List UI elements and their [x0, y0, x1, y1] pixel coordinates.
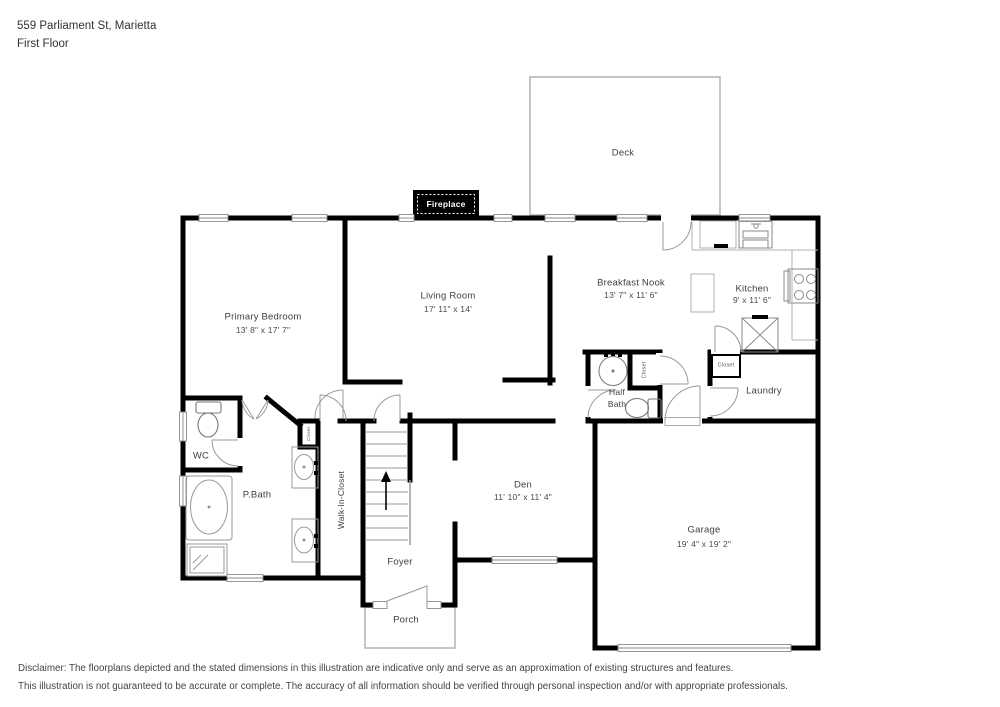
room-dims-breakfast-nook: 13' 7" x 11' 6" [604, 291, 658, 300]
room-label-fireplace: Fireplace [426, 200, 465, 209]
floorplan-page: 559 Parliament St, Marietta First Floor [0, 0, 1000, 707]
vanity-sink-icon-1 [292, 447, 318, 488]
room-label-foyer: Foyer [387, 557, 412, 567]
kitchen-sink-icon [739, 221, 772, 248]
porch-outline [365, 607, 455, 648]
room-label-kitchen: Kitchen [735, 284, 768, 294]
counter-detail [714, 244, 728, 248]
pantry-icon [742, 315, 778, 352]
shower-icon [187, 544, 227, 576]
stove-icon [784, 269, 818, 303]
sink-icon-half-bath [599, 352, 627, 386]
room-label-garage: Garage [688, 525, 721, 535]
room-label-den: Den [514, 480, 532, 490]
staircase-icon [365, 432, 408, 540]
walls [183, 218, 818, 648]
door-openings [236, 214, 740, 609]
room-label-living-room: Living Room [420, 291, 475, 301]
room-dims-den: 11' 10" x 11' 4" [494, 493, 552, 502]
windows [180, 215, 792, 652]
closet-label-hall: Closet [307, 427, 312, 441]
room-label-p-bath: P.Bath [243, 490, 272, 500]
garage-entry-door [665, 418, 700, 426]
disclaimer-line-2: This illustration is not guaranteed to b… [18, 681, 788, 692]
room-dims-garage: 19' 4" x 19' 2" [677, 540, 731, 549]
room-dims-living-room: 17' 11" x 14' [424, 305, 472, 314]
room-label-half-bath-1: Half [609, 388, 625, 397]
toilet-icon-wc [196, 402, 221, 437]
room-dims-primary-bedroom: 13' 8" x 17' 7" [236, 326, 290, 335]
vanity-sink-icon-2 [292, 519, 318, 562]
room-label-primary-bedroom: Primary Bedroom [225, 312, 302, 322]
room-label-walk-in-closet: Walk-In-Closet [337, 471, 346, 529]
room-label-porch: Porch [393, 615, 419, 625]
disclaimer-line-1: Disclaimer: The floorplans depicted and … [18, 663, 733, 674]
closet-label-laundry: Closet [718, 363, 735, 369]
kitchen-island [691, 274, 714, 312]
room-label-breakfast-nook: Breakfast Nook [597, 278, 665, 288]
bathtub-icon [186, 476, 232, 540]
deck-outline [530, 77, 720, 215]
toilet-icon-half-bath [626, 399, 662, 419]
room-label-deck: Deck [612, 148, 634, 158]
floorplan-drawing [0, 0, 1000, 707]
room-label-half-bath-2: Bath [608, 400, 626, 409]
room-label-wc: WC [193, 451, 209, 461]
room-label-laundry: Laundry [746, 386, 782, 396]
room-dims-kitchen: 9' x 11' 6" [733, 296, 771, 305]
closet-label-half-bath: Closet [642, 362, 648, 379]
